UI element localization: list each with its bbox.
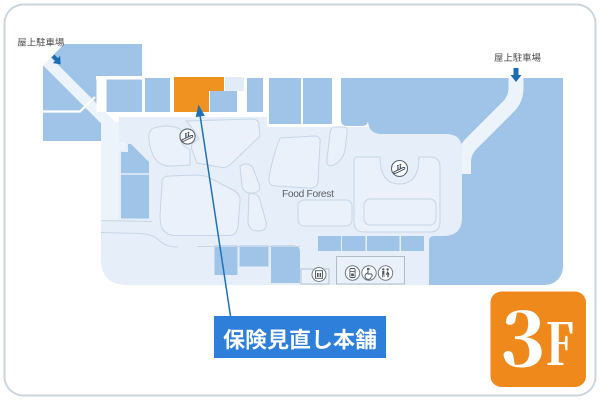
svg-text:Food Forest: Food Forest — [282, 189, 334, 200]
